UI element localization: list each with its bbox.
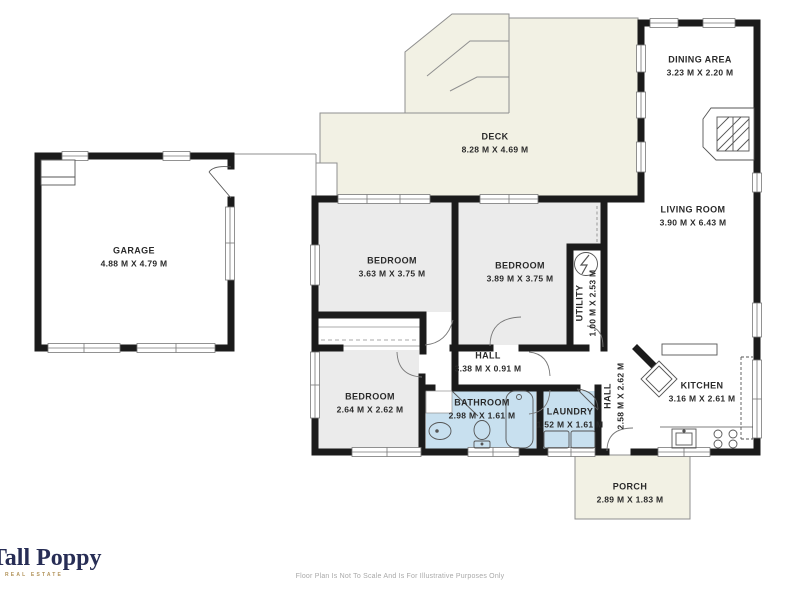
- hall2-label: HALL 2.58 M X 2.62 M: [602, 363, 627, 430]
- kitchen-label: KITCHEN 3.16 M X 2.61 M: [669, 380, 736, 405]
- bedroom3-label: BEDROOM 2.64 M X 2.62 M: [337, 391, 404, 416]
- dining-area-label: DINING AREA 3.23 M X 2.20 M: [667, 54, 734, 79]
- bedroom2-label: BEDROOM 3.89 M X 3.75 M: [487, 260, 554, 285]
- porch-label: PORCH 2.89 M X 1.83 M: [597, 481, 664, 506]
- deck-label: DECK 8.28 M X 4.69 M: [462, 131, 529, 156]
- wardrobe: [318, 317, 421, 346]
- floor-plan-drawing: [0, 0, 800, 600]
- stove-icon: [714, 430, 737, 448]
- floor-plan: [0, 0, 800, 600]
- living-room-label: LIVING ROOM 3.90 M X 6.43 M: [660, 204, 727, 229]
- bedroom1-label: BEDROOM 3.63 M X 3.75 M: [359, 255, 426, 280]
- kitchen-counter: [662, 344, 717, 355]
- utility-label: UTILITY 1.00 M X 2.53 M: [574, 270, 599, 337]
- disclaimer-text: Floor Plan Is Not To Scale And Is For Il…: [0, 573, 800, 580]
- bathroom-label: BATHROOM 2.98 M X 1.61 M: [449, 397, 516, 422]
- porch-door-arc: [607, 428, 633, 451]
- bedroom1-door-arc: [425, 320, 453, 345]
- garage-storage: [41, 160, 75, 185]
- deck-shape: [234, 14, 638, 199]
- logo-text: Tall Poppy: [0, 545, 102, 571]
- fireplace: [703, 108, 754, 160]
- hall-label: HALL 3.38 M X 0.91 M: [455, 350, 522, 375]
- garage-label: GARAGE 4.88 M X 4.79 M: [101, 245, 168, 270]
- garage-door-arc: [209, 167, 231, 198]
- laundry-label: LAUNDRY 1.52 M X 1.61 M: [537, 406, 604, 431]
